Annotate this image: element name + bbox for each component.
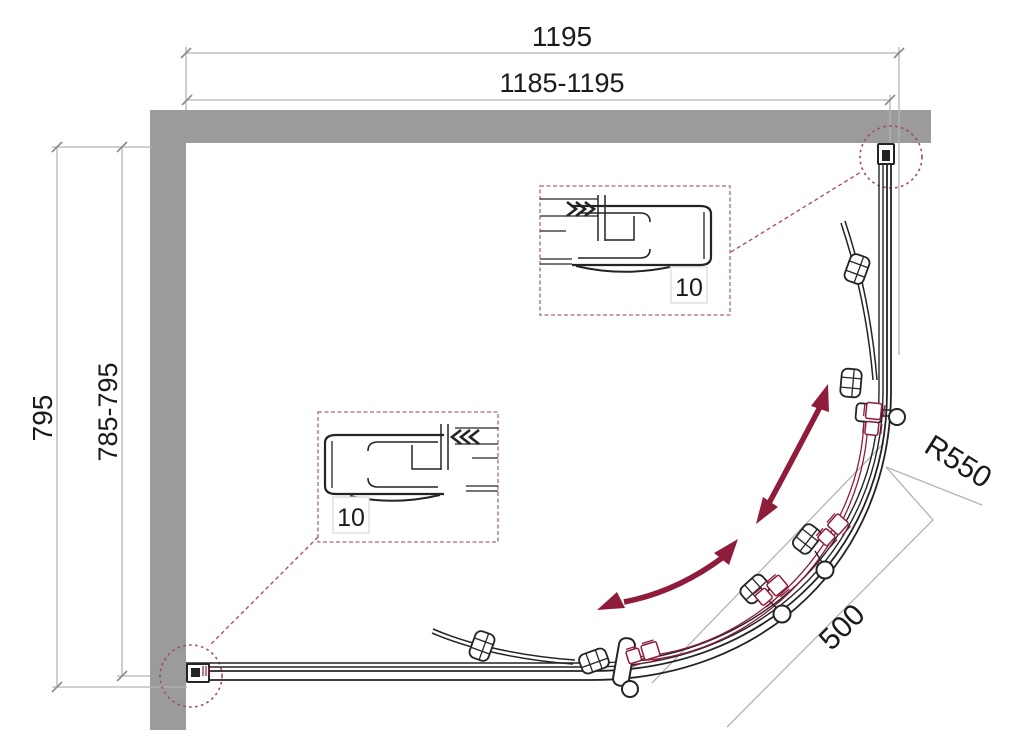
arrowhead (811, 384, 829, 412)
arrowhead (756, 497, 778, 524)
wall-profile-top-right (878, 144, 894, 164)
wall-top (150, 110, 931, 143)
shower-enclosure-plan-drawing: 10 10 (0, 0, 1024, 753)
roller-bracket (468, 629, 496, 662)
dim-depth-outer: 795 (27, 395, 58, 442)
dim-width-outer: 1195 (532, 21, 592, 52)
door-edge-bracket (612, 637, 638, 697)
dim-width-range: 1185-1195 (499, 68, 624, 98)
roller-bracket (840, 368, 862, 398)
technical-drawing-page: 10 10 (0, 0, 1024, 753)
red-seal-cluster (815, 512, 851, 549)
wall-left (150, 110, 186, 730)
detail-label-top: 10 (675, 274, 703, 302)
dim-door-opening: 500 (813, 598, 872, 657)
detail-label-bottom: 10 (337, 504, 365, 532)
wall-profile-bottom-left (187, 664, 209, 682)
detail-callout-bottom: 10 (209, 412, 498, 646)
roller-bracket (843, 252, 871, 285)
roller-pin (817, 562, 834, 579)
arrowhead (597, 592, 625, 610)
slide-direction-arrows (597, 384, 829, 610)
detail-callout-top: 10 (540, 172, 861, 315)
dim-depth-range: 785-795 (93, 362, 123, 461)
roller-pin (774, 606, 791, 623)
